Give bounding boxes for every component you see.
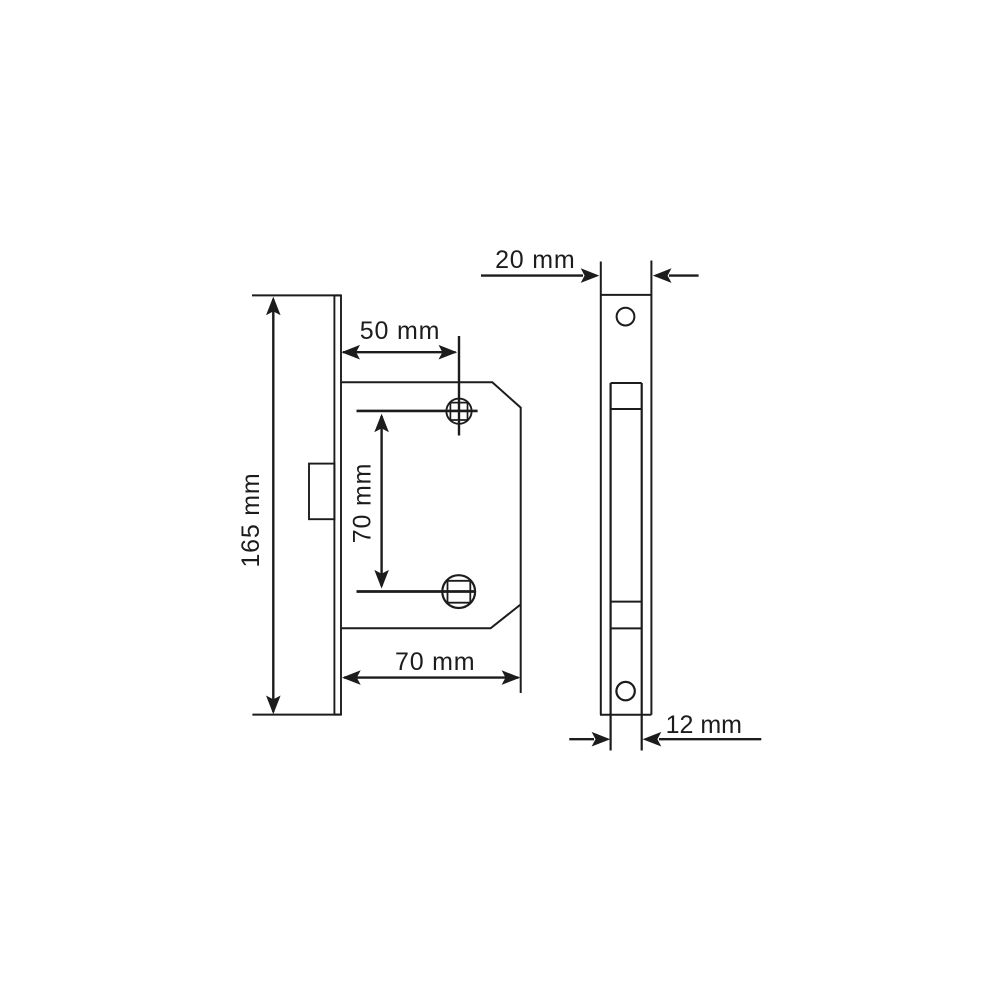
svg-text:165 mm: 165 mm [237, 472, 265, 567]
svg-text:12 mm: 12 mm [666, 711, 742, 739]
svg-text:50 mm: 50 mm [360, 317, 440, 345]
svg-text:70 mm: 70 mm [349, 463, 377, 543]
svg-text:20 mm: 20 mm [495, 246, 575, 274]
svg-text:70 mm: 70 mm [395, 648, 475, 676]
